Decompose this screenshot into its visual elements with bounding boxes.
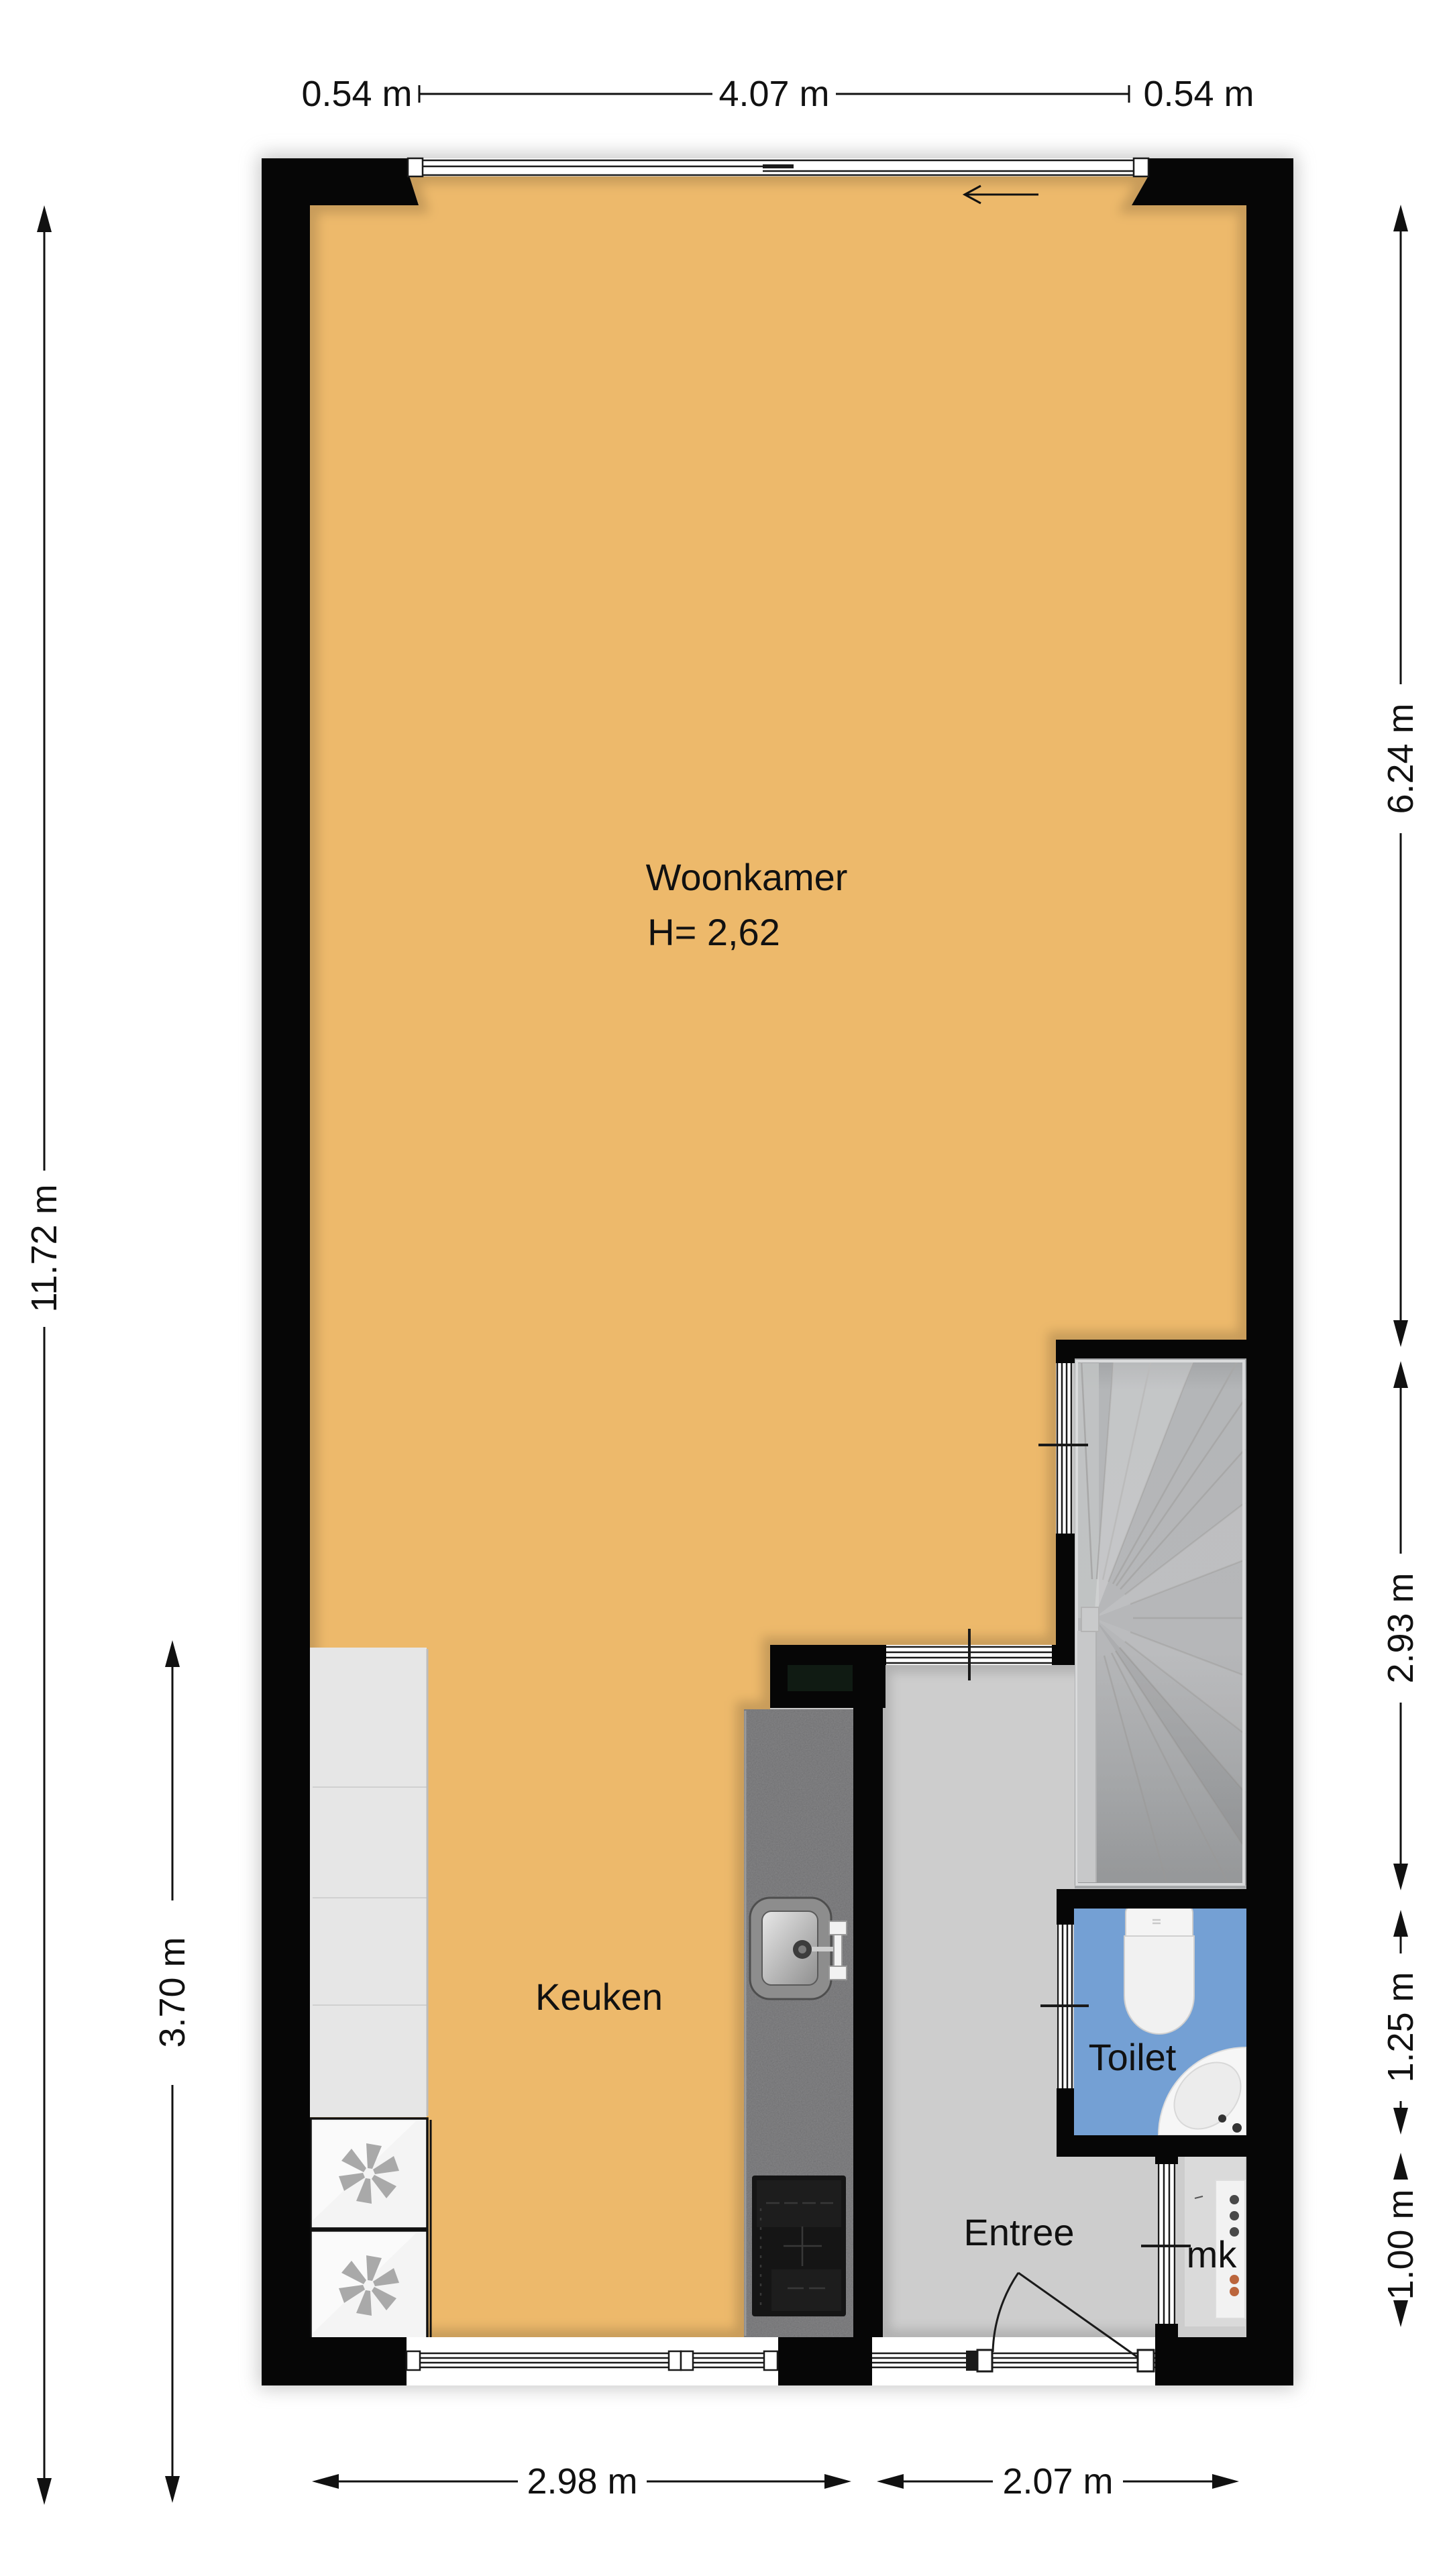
- svg-text:2.93 m: 2.93 m: [1381, 1572, 1421, 1683]
- svg-text:6.24 m: 6.24 m: [1381, 703, 1421, 814]
- svg-text:1.00 m: 1.00 m: [1381, 2189, 1421, 2300]
- svg-text:11.72 m: 11.72 m: [24, 1184, 64, 1312]
- svg-text:1.25 m: 1.25 m: [1381, 1972, 1421, 2082]
- svg-text:mk: mk: [1187, 2233, 1238, 2275]
- svg-text:H= 2,62: H= 2,62: [647, 911, 780, 953]
- svg-text:Entree: Entree: [964, 2211, 1075, 2253]
- svg-text:0.54 m: 0.54 m: [301, 74, 412, 114]
- svg-text:2.07 m: 2.07 m: [1002, 2461, 1113, 2502]
- svg-text:3.70 m: 3.70 m: [152, 1937, 193, 2047]
- svg-text:2.98 m: 2.98 m: [527, 2461, 637, 2502]
- svg-text:Toilet: Toilet: [1089, 2036, 1177, 2078]
- svg-text:4.07 m: 4.07 m: [718, 74, 829, 114]
- svg-text:Woonkamer: Woonkamer: [646, 856, 848, 898]
- svg-text:0.54 m: 0.54 m: [1143, 74, 1254, 114]
- svg-text:Keuken: Keuken: [535, 1976, 663, 2018]
